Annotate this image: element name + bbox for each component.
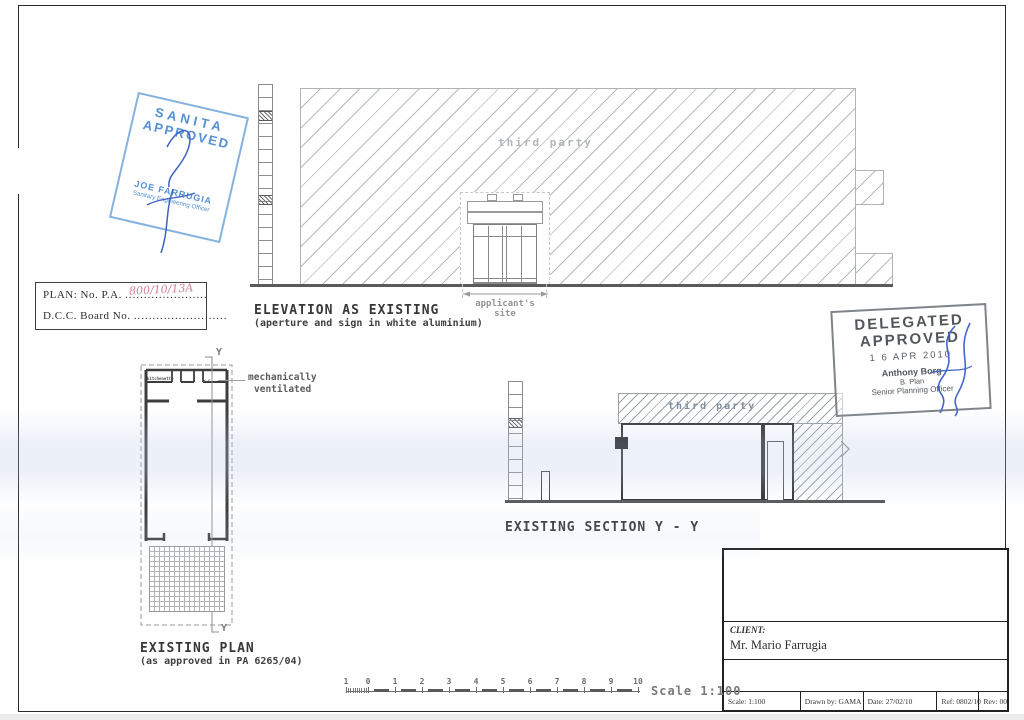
elevation-level-rod <box>258 84 273 285</box>
scale-bar-subdivision <box>348 688 349 693</box>
board-number-line: D.C.C. Board No. .......................… <box>43 310 206 322</box>
plan-number-label: PLAN: No. P.A. <box>43 289 122 301</box>
door-mullion <box>488 226 489 283</box>
scale-bar-subdivision <box>361 688 362 693</box>
elevation-wall-step <box>855 170 884 205</box>
scale-bar-tick <box>557 687 558 693</box>
scale-bar-tick <box>530 687 531 693</box>
scale-bar-tick <box>422 687 423 693</box>
section-title: EXISTING SECTION Y - Y <box>505 520 699 535</box>
section-main-room <box>621 423 763 501</box>
rod-hatch-band <box>259 195 272 205</box>
title-block-footer-row: Scale: 1:100 Drawn by: GAMA Date: 27/02/… <box>724 692 1007 710</box>
scale-bar-subdivision <box>359 688 360 693</box>
scale-bar-tick-label: 6 <box>528 677 533 686</box>
scale-bar-segment <box>563 689 578 692</box>
scale-bar-segment <box>428 689 443 692</box>
scale-bar-subdivision <box>355 688 356 693</box>
scale-bar-tick <box>449 687 450 693</box>
scale-bar-tick-label: 5 <box>501 677 506 686</box>
scale-bar-segment <box>590 689 605 692</box>
rod-hatch-band <box>509 418 522 428</box>
scale-bar: 1012345678910 <box>346 677 646 699</box>
section-ground-line <box>505 500 885 503</box>
scale-bar-tick <box>346 687 347 693</box>
scale-bar-segment <box>509 689 524 692</box>
board-number-dots: ......................... <box>134 310 228 322</box>
board-number-label: D.C.C. Board No. <box>43 310 130 322</box>
scale-bar-segment <box>374 689 389 692</box>
scale-bar-tick-label: 0 <box>366 677 371 686</box>
scale-bar-tick-label: 7 <box>555 677 560 686</box>
scale-bar-tick <box>638 687 639 693</box>
wc-label: w.c. <box>203 378 213 383</box>
scale-bar-subdivision <box>364 688 365 693</box>
scan-border-break <box>12 148 22 194</box>
transom-band <box>467 212 543 224</box>
applicants-site-line1: applicant's <box>462 299 548 309</box>
rev-cell: Rev: 00 <box>979 692 1007 710</box>
kitchenette-label: kitchenette <box>147 376 174 381</box>
scale-bar-segment <box>617 689 632 692</box>
door-frame <box>473 224 537 285</box>
door-top-rail <box>474 236 536 237</box>
rod-hatch-band <box>259 111 272 121</box>
door-mullion <box>502 226 503 283</box>
scale-bar-subdivision <box>366 688 367 693</box>
title-block-empty-mid <box>724 660 1007 692</box>
door-mullion <box>521 226 522 283</box>
elevation-third-party-label: third party <box>498 136 593 149</box>
scale-bar-tick-label: 10 <box>633 677 643 686</box>
floor-plan-title: EXISTING PLAN <box>140 641 255 656</box>
scale-bar-tick <box>584 687 585 693</box>
scale-bar-subdivision <box>353 688 354 693</box>
scale-bar-segment <box>536 689 551 692</box>
scale-bar-subdivision <box>350 688 351 693</box>
vent-note-line2: ventilated <box>254 384 311 395</box>
section-low-wall <box>541 471 550 502</box>
door-mullion <box>506 226 507 283</box>
elevation-party-wall <box>300 88 856 285</box>
scale-bar-tick <box>611 687 612 693</box>
scale-bar-tick <box>476 687 477 693</box>
section-third-party-label: third party <box>668 401 756 412</box>
section-rear-door <box>767 441 784 501</box>
drawn-by-cell: Drawn by: GAMA <box>801 692 864 710</box>
applicants-site-label: applicant's site <box>462 299 548 319</box>
scale-bar-tick-label: 3 <box>447 677 452 686</box>
note-leader-line <box>218 380 245 381</box>
section-bracket-mark <box>840 441 852 457</box>
section-sign-box <box>615 437 628 449</box>
delegated-signature <box>900 318 995 418</box>
vent-note-line1: mechanically <box>248 372 317 383</box>
section-level-rod <box>508 381 523 502</box>
date-cell: Date: 27/02/10 <box>864 692 938 710</box>
scale-bar-tick-label: 9 <box>609 677 614 686</box>
scale-bar-tick <box>395 687 396 693</box>
scale-bar-segment <box>482 689 497 692</box>
drawing-sheet: third party applicant's site ELEVATION A… <box>0 0 1024 720</box>
elevation-title: ELEVATION AS EXISTING <box>254 303 439 318</box>
scan-bottom-edge <box>0 714 1024 720</box>
scale-bar-segment <box>401 689 416 692</box>
scale-bar-tick-label: 4 <box>474 677 479 686</box>
title-block-client-cell: CLIENT: Mr. Mario Farrugia <box>724 622 1007 660</box>
client-name: Mr. Mario Farrugia <box>730 638 1007 653</box>
scale-bar-subdivision <box>357 688 358 693</box>
plan-paved-area <box>149 546 225 612</box>
elevation-ground-line <box>250 284 893 287</box>
title-block: CLIENT: Mr. Mario Farrugia Scale: 1:100 … <box>722 548 1009 712</box>
title-block-empty-top <box>724 550 1007 622</box>
scale-bar-tick <box>503 687 504 693</box>
door-bottom-rail <box>474 278 536 279</box>
section-party-wall-hatch <box>793 423 843 502</box>
sign-bracket <box>513 194 523 201</box>
ref-cell: Ref: 0802/10 <box>937 692 979 710</box>
section-marker-top: Y <box>216 347 222 358</box>
scale-bar-tick <box>368 687 369 693</box>
sanita-signature <box>125 125 235 260</box>
scale-bar-tick-label: 1 <box>393 677 398 686</box>
client-label: CLIENT: <box>730 625 1007 635</box>
elevation-subtitle: (aperture and sign in white aluminium) <box>254 318 483 329</box>
scale-bar-label: Scale 1:100 <box>651 684 741 698</box>
scale-bar-segment <box>455 689 470 692</box>
elevation-wall-base-step <box>855 253 893 285</box>
sign-bracket <box>487 194 497 201</box>
scale-bar-tick-label: 1 <box>344 677 349 686</box>
scale-bar-tick-label: 2 <box>420 677 425 686</box>
scale-bar-tick-label: 8 <box>582 677 587 686</box>
sign-band <box>467 201 543 212</box>
floor-plan-subtitle: (as approved in PA 6265/04) <box>140 656 303 667</box>
section-marker-bottom: Y <box>221 623 227 634</box>
